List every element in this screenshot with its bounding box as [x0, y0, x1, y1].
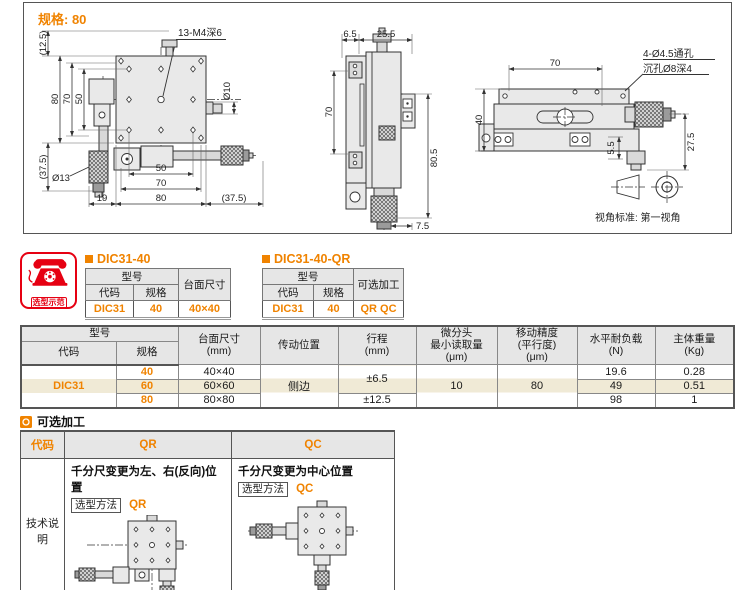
- example-table-1: DIC31-40 型号 台面尺寸 代码 规格 DIC31 40 40×40: [85, 252, 231, 320]
- dim-6-5: 6.5: [343, 29, 356, 40]
- opt-col-qc: QC: [232, 431, 395, 459]
- qc-variant-drawing: [238, 499, 388, 590]
- col-micrometer-resolution: 微分头 最小读取量 (μm): [416, 326, 497, 365]
- hole-note-line1: 4-Ø4.5通孔: [643, 48, 694, 60]
- dim-h37-5: (37.5): [222, 193, 247, 204]
- dim-front-40: 40: [474, 115, 485, 126]
- technical-drawing-panel: 规格: 80: [23, 2, 732, 234]
- cell-spec: 60: [116, 379, 178, 393]
- example-title-1: DIC31-40: [85, 252, 231, 266]
- cell-accuracy: 80: [497, 365, 577, 408]
- cell-weight: 0.28: [655, 365, 734, 380]
- example-row: DIC31 40 40×40: [86, 301, 231, 319]
- dim-v37-5: (37.5): [38, 155, 49, 180]
- header-spec: 规格: [134, 285, 179, 301]
- qr-method-row: 选型方法 QR: [71, 498, 225, 513]
- top-view-drawing: 13-M4深6 Ø10 (12.5) 80 70 50 (37.5) 50 70…: [26, 21, 288, 227]
- hole-note-line2: 沉孔Ø8深4: [643, 62, 692, 75]
- value-size: 40×40: [179, 301, 231, 319]
- dim-v70: 70: [62, 94, 73, 105]
- dim-v80: 80: [50, 94, 61, 105]
- front-view-geometry: [475, 60, 715, 171]
- qr-description: 千分尺变更为左、右(反向)位置: [71, 463, 225, 495]
- cell-load: 49: [577, 379, 655, 393]
- optional-machining-title: 可选加工: [37, 413, 85, 430]
- specification-table: 型号 台面尺寸 (mm) 传动位置 行程 (mm) 微分头 最小读取量 (μm): [20, 325, 735, 409]
- col-drive-position: 传动位置: [260, 326, 338, 365]
- value-spec: 40: [314, 301, 354, 319]
- projection-note: 视角标准: 第一视角: [595, 211, 681, 224]
- header-table-size: 台面尺寸: [179, 269, 231, 301]
- cell-spec: 80: [116, 393, 178, 408]
- header-spec: 规格: [314, 285, 354, 301]
- value-optional: QR QC: [354, 301, 404, 319]
- opt-row-label: 技术说明: [21, 459, 65, 590]
- opt-qc-cell: 千分尺变更为中心位置 选型方法 QC: [232, 459, 395, 590]
- value-spec: 40: [134, 301, 179, 319]
- col-code: 代码: [21, 342, 116, 365]
- dim-7-5: 7.5: [416, 221, 429, 231]
- qr-variant-drawing: [73, 515, 223, 590]
- cell-spec: 40: [116, 365, 178, 380]
- cell-micro: 10: [416, 365, 497, 408]
- phone-icon: [26, 257, 72, 287]
- col-load-capacity: 水平耐负载 (N): [577, 326, 655, 365]
- dim-h70: 70: [156, 178, 167, 189]
- catalog-page: 规格: 80: [0, 0, 750, 590]
- selection-example-label: 选型示范: [31, 297, 67, 309]
- optional-machining-table: 代码 QR QC 技术说明 千分尺变更为左、右(反向)位置 选型方法 QR: [20, 430, 395, 590]
- method-label: 选型方法: [71, 498, 121, 513]
- header-optional: 可选加工: [354, 269, 404, 301]
- dim-27-5: 27.5: [686, 133, 697, 152]
- cell-drive: 侧边: [260, 365, 338, 408]
- dim-v50: 50: [74, 94, 85, 105]
- dim-80-5: 80.5: [429, 149, 440, 168]
- cell-load: 98: [577, 393, 655, 408]
- qc-description: 千分尺变更为中心位置: [238, 463, 388, 479]
- col-travel: 行程 (mm): [338, 326, 416, 365]
- qr-code-value: QR: [129, 499, 146, 511]
- dim-front-70: 70: [550, 58, 561, 69]
- cell-weight: 0.51: [655, 379, 734, 393]
- cell-travel-40-60: ±6.5: [338, 365, 416, 394]
- cell-travel-80: ±12.5: [338, 393, 416, 408]
- header-model: 型号: [263, 269, 354, 285]
- header-model: 型号: [86, 269, 179, 285]
- spec-row-80: 80 80×80 ±12.5 98 1: [21, 393, 734, 408]
- bullet-square-icon: [85, 255, 93, 263]
- cell-size: 80×80: [178, 393, 260, 408]
- cell-weight: 1: [655, 393, 734, 408]
- col-accuracy: 移动精度 (平行度) (μm): [497, 326, 577, 365]
- cell-code: DIC31: [21, 365, 116, 408]
- dim-12-5: (12.5): [38, 31, 49, 56]
- front-view-drawing: 4-Ø4.5通孔 沉孔Ø8深4 70 40 27.5 5.5 视角标准: 第一视…: [467, 29, 729, 231]
- example-table-2: DIC31-40-QR 型号 可选加工 代码 规格 DIC31 40 QR QC: [262, 252, 404, 320]
- example-row: DIC31 40 QR QC: [263, 301, 404, 319]
- spec-row-40: DIC31 40 40×40 侧边 ±6.5 10 80 19.6 0.28: [21, 365, 734, 380]
- cell-load: 19.6: [577, 365, 655, 380]
- col-weight: 主体重量 (Kg): [655, 326, 734, 365]
- example-title-2: DIC31-40-QR: [262, 252, 404, 266]
- qc-method-row: 选型方法 QC: [238, 482, 388, 497]
- dim-hole-note: 13-M4深6: [178, 27, 222, 39]
- value-code: DIC31: [263, 301, 314, 319]
- col-spec: 规格: [116, 342, 178, 365]
- col-model: 型号: [21, 326, 178, 342]
- optional-machining-header: 可选加工: [20, 413, 85, 430]
- top-view-geometry: [42, 31, 263, 207]
- dim-dia10: Ø10: [222, 82, 233, 100]
- dim-dia13: Ø13: [52, 173, 70, 184]
- header-code: 代码: [86, 285, 134, 301]
- col-table-size: 台面尺寸 (mm): [178, 326, 260, 365]
- value-code: DIC31: [86, 301, 134, 319]
- opt-col-qr: QR: [65, 431, 232, 459]
- opt-col-code: 代码: [21, 431, 65, 459]
- side-view-geometry: [330, 28, 432, 230]
- dim-5-5: 5.5: [606, 141, 617, 154]
- dim-h80: 80: [156, 193, 167, 204]
- method-label: 选型方法: [238, 482, 288, 497]
- header-code: 代码: [263, 285, 314, 301]
- cell-size: 40×40: [178, 365, 260, 380]
- bullet-square-icon: [262, 255, 270, 263]
- dim-h50: 50: [156, 163, 167, 174]
- section-square-icon: [20, 416, 32, 428]
- dim-h19: 19: [97, 193, 108, 204]
- cell-size: 60×60: [178, 379, 260, 393]
- first-angle-projection-symbol: [611, 171, 683, 203]
- dim-25-5: 25.5: [377, 29, 396, 40]
- qc-code-value: QC: [296, 483, 313, 495]
- dim-side-70: 70: [324, 107, 335, 118]
- selection-example-badge: 选型示范: [20, 252, 77, 309]
- opt-qr-cell: 千分尺变更为左、右(反向)位置 选型方法 QR: [65, 459, 232, 590]
- side-view-drawing: 6.5 25.5 70 80.5 7.5: [306, 26, 466, 231]
